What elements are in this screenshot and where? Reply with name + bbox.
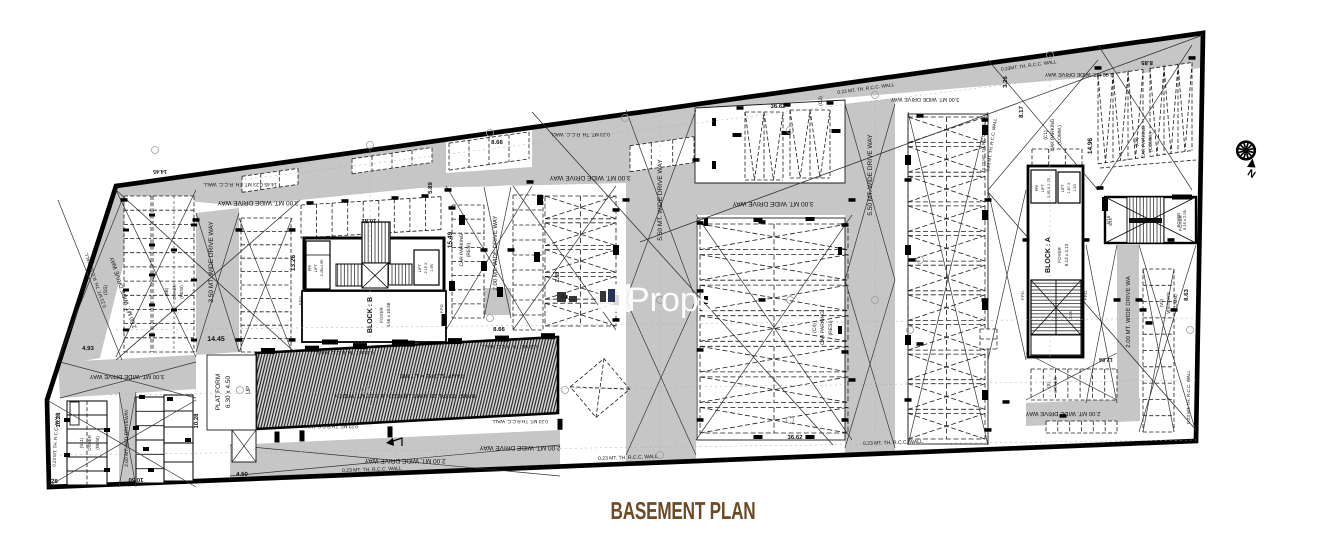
- svg-text:14.45: 14.45: [207, 336, 225, 343]
- svg-text:(C6): (C6): [1134, 137, 1140, 147]
- svg-text:2.00 MT. WIDE DRIVE WAY: 2.00 MT. WIDE DRIVE WAY: [479, 444, 561, 451]
- svg-text:LIFT: LIFT: [418, 263, 422, 271]
- svg-text:(RESI): (RESI): [828, 320, 834, 335]
- svg-text:4.50: 4.50: [236, 471, 248, 478]
- svg-text:(C1): (C1): [1043, 130, 1049, 140]
- svg-text:(COMM.): (COMM.): [1148, 132, 1154, 152]
- svg-text:6.30 x 4.50: 6.30 x 4.50: [225, 376, 232, 409]
- svg-text:F.P.D.: F.P.D.: [440, 303, 444, 313]
- svg-text:RAMP SLOPE = 1:7 MT.: RAMP SLOPE = 1:7 MT.: [399, 372, 465, 379]
- svg-text:LIFT: LIFT: [1061, 183, 1065, 191]
- svg-text:(SS): (SS): [103, 285, 109, 295]
- svg-text:2.05: 2.05: [1068, 310, 1073, 319]
- svg-text:F.P.D.: F.P.D.: [299, 295, 303, 305]
- svg-text:OTHER: OTHER: [172, 283, 177, 300]
- svg-text:(COMM.): (COMM.): [1057, 125, 1063, 145]
- svg-text:0.23 MT. TH.R.C.C. WALL: 0.23 MT. TH.R.C.C. WALL: [302, 423, 358, 429]
- svg-text:0.23 MT. TH. R.C.C. WALL: 0.23 MT. TH. R.C.C. WALL: [1186, 370, 1191, 424]
- svg-text:8.85: 8.85: [1141, 59, 1153, 66]
- svg-text:14.45: 14.45: [153, 168, 167, 174]
- svg-text:1.26: 1.26: [46, 478, 58, 485]
- svg-text:UP: UP: [245, 386, 252, 394]
- svg-text:5.89: 5.89: [427, 182, 434, 194]
- svg-text:(RESI): (RESI): [466, 242, 472, 257]
- svg-text:10.81: 10.81: [361, 217, 377, 224]
- svg-text:3.50 MT. WIDE DRIVE WAY: 3.50 MT. WIDE DRIVE WAY: [208, 221, 215, 303]
- svg-text:5.50 MT. WIDE DRIVE WAY: 5.50 MT. WIDE DRIVE WAY: [657, 159, 664, 241]
- svg-text:(RESI): (RESI): [95, 436, 100, 450]
- svg-text:1.87 X: 1.87 X: [1067, 182, 1071, 193]
- svg-text:OTHER: OTHER: [87, 434, 92, 451]
- svg-text:(S): (S): [1046, 382, 1051, 389]
- svg-text:FOYER: FOYER: [1057, 247, 1062, 263]
- svg-text:VISITOR'S: VISITOR'S: [1166, 292, 1171, 314]
- svg-text:10.50: 10.50: [128, 476, 144, 483]
- svg-text:3.00 MT. WIDE DRIVE WAY: 3.00 MT. WIDE DRIVE WAY: [549, 174, 631, 181]
- svg-text:OTHER: OTHER: [1053, 376, 1058, 393]
- svg-text:2.00 MT. WIDE DRIVE WAY: 2.00 MT. WIDE DRIVE WAY: [492, 215, 499, 290]
- svg-text:0.23 MT. TH.R.C.C. WALL: 0.23 MT. TH.R.C.C. WALL: [492, 418, 548, 424]
- svg-text:0.23 MT. TH. R.C.C. WALL: 0.23 MT. TH. R.C.C. WALL: [981, 119, 986, 170]
- svg-text:2.00 MT. WIDE DRIVE WAY: 2.00 MT. WIDE DRIVE WAY: [1025, 410, 1100, 417]
- svg-text:8.63: 8.63: [1183, 289, 1190, 301]
- svg-text:PRI: PRI: [308, 265, 312, 271]
- svg-text:8.13 x 4.13: 8.13 x 4.13: [1064, 243, 1069, 266]
- svg-text:8.66: 8.66: [493, 326, 505, 333]
- svg-text:10.28: 10.28: [193, 413, 200, 429]
- svg-text:2.00 MT. WIDE DRIVE WAY: 2.00 MT. WIDE DRIVE WAY: [364, 457, 446, 464]
- svg-text:PLAT FORM: PLAT FORM: [215, 374, 222, 411]
- svg-text:FOYER: FOYER: [1178, 215, 1183, 231]
- svg-text:CAR PARKING: CAR PARKING: [1050, 118, 1056, 151]
- svg-text:2.60 MT. WID DRIVEWAY: 2.60 MT. WID DRIVEWAY: [124, 408, 130, 466]
- svg-text:F.P.D.: F.P.D.: [1021, 290, 1025, 300]
- svg-text:14.96: 14.96: [1087, 137, 1094, 154]
- svg-text:CAR PARKING: CAR PARKING: [820, 311, 826, 345]
- svg-text:(C4): (C4): [812, 323, 818, 333]
- svg-text:36.62: 36.62: [787, 434, 803, 441]
- svg-text:3.26: 3.26: [1002, 76, 1009, 88]
- svg-text:4.93: 4.93: [82, 345, 94, 352]
- svg-text:CAR PARKING: CAR PARKING: [1141, 125, 1147, 158]
- svg-text:12.84: 12.84: [1098, 356, 1113, 362]
- svg-text:2.00 MT. WIDE DRIVE WA: 2.00 MT. WIDE DRIVE WA: [1125, 276, 1132, 347]
- svg-text:3.00 MT. WIDE DRIVE WAY: 3.00 MT. WIDE DRIVE WAY: [732, 200, 814, 207]
- svg-text:0.23 MT. TH. R.C.C. WALL: 0.23 MT. TH. R.C.C. WALL: [550, 131, 610, 137]
- svg-text:8.17: 8.17: [1018, 106, 1025, 118]
- svg-text:BLOCK : A: BLOCK : A: [1045, 237, 1052, 273]
- svg-text:13.26: 13.26: [290, 254, 297, 271]
- svg-text:BLOCK : B: BLOCK : B: [367, 297, 374, 333]
- svg-text:2.15 X: 2.15 X: [424, 262, 428, 273]
- svg-text:3.00 MT. WIDE DRIVE WAY: 3.00 MT. WIDE DRIVE WAY: [890, 96, 959, 102]
- svg-text:2.55: 2.55: [555, 272, 561, 283]
- svg-text:RAMP TOTAL 28.46MT. LENGTH & 6: RAMP TOTAL 28.46MT. LENGTH & 6.07 MT. WI…: [334, 392, 475, 399]
- svg-text:36.62: 36.62: [770, 103, 786, 110]
- svg-text:FOYER: FOYER: [379, 307, 384, 323]
- svg-text:(S11): (S11): [79, 437, 84, 448]
- svg-text:BASEMENT PLAN: BASEMENT PLAN: [611, 498, 756, 525]
- svg-text:15.49: 15.49: [447, 231, 454, 248]
- svg-text:LIFT: LIFT: [1041, 183, 1045, 191]
- svg-text:0.23 MT. TH. R.C.C. WALL: 0.23 MT. TH. R.C.C. WALL: [481, 343, 539, 349]
- svg-text:(RESI): (RESI): [179, 285, 184, 299]
- svg-text:0.23 MT. TH. R.C.C. WALL: 0.23 MT. TH. R.C.C. WALL: [316, 349, 374, 355]
- svg-text:LIFT: LIFT: [314, 263, 318, 271]
- svg-text:(6B): (6B): [164, 287, 169, 296]
- svg-text:5/16: 5/16: [1106, 215, 1111, 224]
- svg-text:4.56 x 10.58: 4.56 x 10.58: [386, 302, 391, 327]
- svg-text:1.95: 1.95: [430, 264, 434, 271]
- svg-text:3.00 MT. WIDE DRIVE WAY: 3.00 MT. WIDE DRIVE WAY: [89, 373, 164, 380]
- svg-text:F.P.D.: F.P.D.: [1084, 290, 1088, 300]
- svg-text:1.54: 1.54: [1073, 184, 1077, 191]
- svg-text:3.00 MT. WIDE DRIVE WAY: 3.00 MT. WIDE DRIVE WAY: [217, 199, 299, 206]
- svg-text:3.00 MT. WIDE DRIVE WAY: 3.00 MT. WIDE DRIVE WAY: [1044, 71, 1113, 77]
- svg-text:PRI: PRI: [1035, 185, 1039, 191]
- svg-text:(COMM): (COMM): [1173, 294, 1178, 312]
- svg-text:CAR PARKING: CAR PARKING: [459, 233, 465, 266]
- svg-text:2.45x1.95: 2.45x1.95: [320, 260, 324, 277]
- svg-text:5.50 MT. WIDE DRIVE WAY: 5.50 MT. WIDE DRIVE WAY: [867, 134, 874, 216]
- svg-text:8.66: 8.66: [491, 139, 503, 146]
- svg-text:(C3): (C3): [818, 96, 824, 106]
- svg-text:14.45 0.23 MT. TH. R.C.C. WALL: 14.45 0.23 MT. TH. R.C.C. WALL: [203, 181, 277, 187]
- svg-text:2.45 X 1.79: 2.45 X 1.79: [1047, 178, 1051, 197]
- svg-text:(V2): (V2): [1159, 298, 1164, 307]
- svg-text:Props: Props: [627, 281, 716, 319]
